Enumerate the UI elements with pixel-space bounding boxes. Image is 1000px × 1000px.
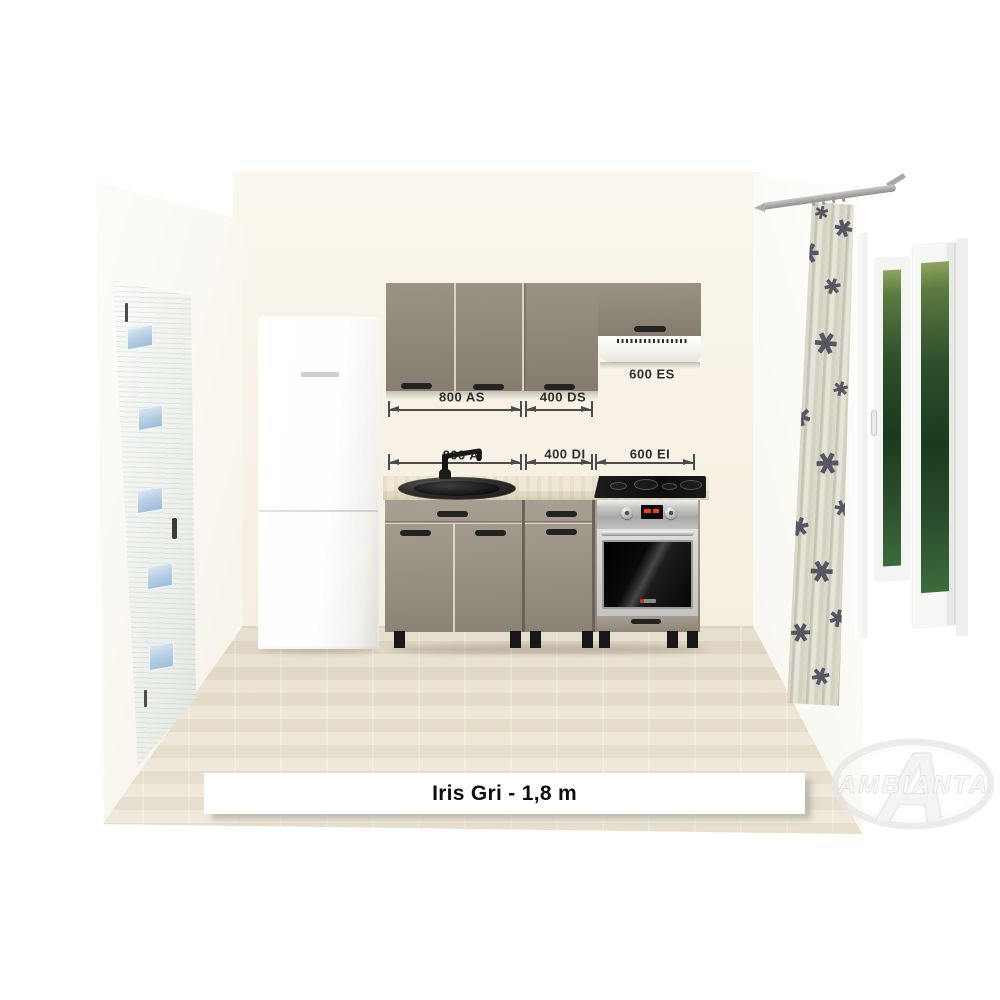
door-hinge [144,690,147,707]
dimension-arrow [390,459,399,465]
dimension-tick [693,454,695,470]
dimension-arrow [683,459,692,465]
cabinet-leg [394,631,405,648]
cabinet-leg [599,631,610,648]
window-outer-edge [956,238,968,637]
window-glass [883,270,901,567]
drawer-handle [546,529,577,535]
dimension-arrow [581,406,590,412]
dimension-arrow [581,459,590,465]
hob-burner [610,482,627,490]
cabinet-leg [667,631,678,648]
page-title: Iris Gri - 1,8 m [432,782,577,806]
oven-brand-mark [640,599,656,603]
watermark-text: AMBIANTA [837,771,988,799]
oven-knob [621,507,633,519]
window-glass [921,261,949,593]
door-glass-panel [147,563,173,591]
drawer-handle [437,511,468,517]
cabinet-handle [475,530,506,536]
door-glass-panel [137,487,163,515]
faucet-tip [477,452,481,461]
sink-bowl [414,481,500,496]
cabinet-handle [401,383,432,389]
cabinet-unit-gap [524,283,526,391]
curtain-flower-icon: ✱ [808,446,844,484]
wall-cabinet-block [386,283,598,391]
ceramic-hob [594,476,706,498]
cabinet-leg [530,631,541,648]
curtain-flower-icon: ✱ [830,378,851,402]
cabinet-door-seam [453,523,455,632]
dimension-arrow [511,406,520,412]
ambianta-watermark: A AMBIANTA [832,736,994,832]
door-hinge [125,303,128,322]
dim-label-600ei: 600 EI [630,447,671,462]
cabinet-handle [400,530,431,536]
curtain-flower-icon: ✱ [809,326,844,364]
window-handle [871,410,877,436]
dim-label-400ds: 400 DS [540,390,586,405]
dimension-line [388,462,521,464]
oven-knob [665,507,677,519]
hood-vent-grille [617,339,689,343]
cabinet-leg [582,631,593,648]
window-open-sash [913,242,961,627]
kitchen-render-scene: 800 AS 400 DS 600 ES 800 AI 400 DI 600 E… [0,0,1000,1000]
title-bar: Iris Gri - 1,8 m [204,773,805,814]
dimension-arrow [527,406,536,412]
window-frame [875,257,909,581]
dimension-arrow [390,406,399,412]
dim-label-800as: 800 AS [439,390,485,405]
dimension-line [595,462,693,464]
dimension-arrow [511,459,520,465]
curtain-flower-icon: ✱ [812,203,831,224]
door-handle [172,518,177,539]
dimension-tick [520,401,522,417]
oven-display-digits [653,509,659,513]
curtain-flower-icon: ✱ [804,554,840,592]
drawer-handle [546,511,577,517]
drawer-handle [631,619,661,624]
cabinet-leg [510,631,521,648]
faucet-base [439,469,451,479]
cabinet-handle [634,326,666,332]
dimension-tick [520,454,522,470]
oven-display-digits [644,509,651,513]
dimension-tick [591,454,593,470]
door-glass-panel [149,642,174,671]
dimension-tick [591,401,593,417]
base-cabinet-400 [525,499,592,632]
door-glass-panel [138,405,163,431]
refrigerator-door-split [259,510,378,512]
hob-burner [680,480,702,490]
cabinet-door-seam [454,283,456,391]
drawer-seam-highlight [525,523,592,524]
dimension-line [388,409,521,411]
hob-burner [662,483,677,490]
dim-label-600es: 600 ES [629,367,675,382]
cabinet-leg [687,631,698,648]
oven-handle [601,531,694,536]
oven-display [641,505,663,519]
dimension-arrow [527,459,536,465]
window-jamb [855,233,867,638]
dim-label-400di: 400 DI [544,447,585,462]
fridge-brand-mark [301,372,339,377]
cabinet-floor-shadow [388,645,708,654]
curtain-flower-icon: ✱ [807,663,834,692]
refrigerator [258,317,379,649]
hob-burner [634,479,658,490]
dimension-arrow [597,459,606,465]
curtain-flower-icon: ✱ [819,273,847,302]
